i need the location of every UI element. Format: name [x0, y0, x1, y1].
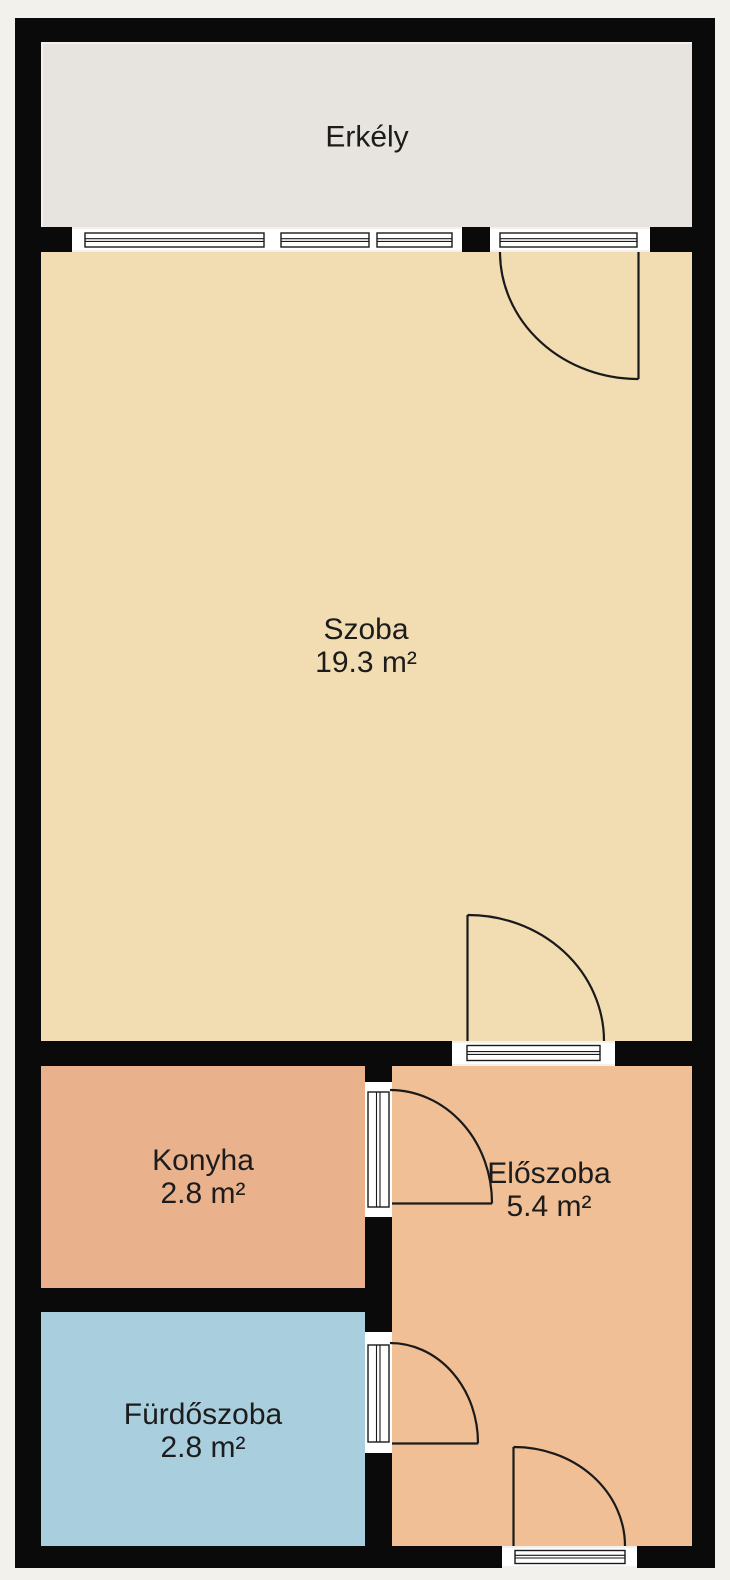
- floor-plan: Erkély Szoba 19.3 m² Konyha 2.8 m² Elősz…: [0, 0, 730, 1580]
- room-label-eloszoba: Előszoba 5.4 m²: [487, 1157, 610, 1223]
- room-name: Fürdőszoba: [124, 1398, 282, 1431]
- room-label-furdoszoba: Fürdőszoba 2.8 m²: [124, 1398, 282, 1464]
- room-name: Erkély: [325, 121, 408, 154]
- room-name: Szoba: [315, 613, 417, 646]
- room-name: Konyha: [152, 1144, 254, 1177]
- balcony-window: [85, 233, 452, 247]
- room-area: 2.8 m²: [124, 1431, 282, 1464]
- room-label-erkely: Erkély: [325, 121, 408, 154]
- room-label-konyha: Konyha 2.8 m²: [152, 1144, 254, 1210]
- room-name: Előszoba: [487, 1157, 610, 1190]
- room-area: 2.8 m²: [152, 1177, 254, 1210]
- room-area: 5.4 m²: [487, 1190, 610, 1223]
- room-area: 19.3 m²: [315, 646, 417, 679]
- room-label-szoba: Szoba 19.3 m²: [315, 613, 417, 679]
- room-eloszoba: [392, 1066, 692, 1546]
